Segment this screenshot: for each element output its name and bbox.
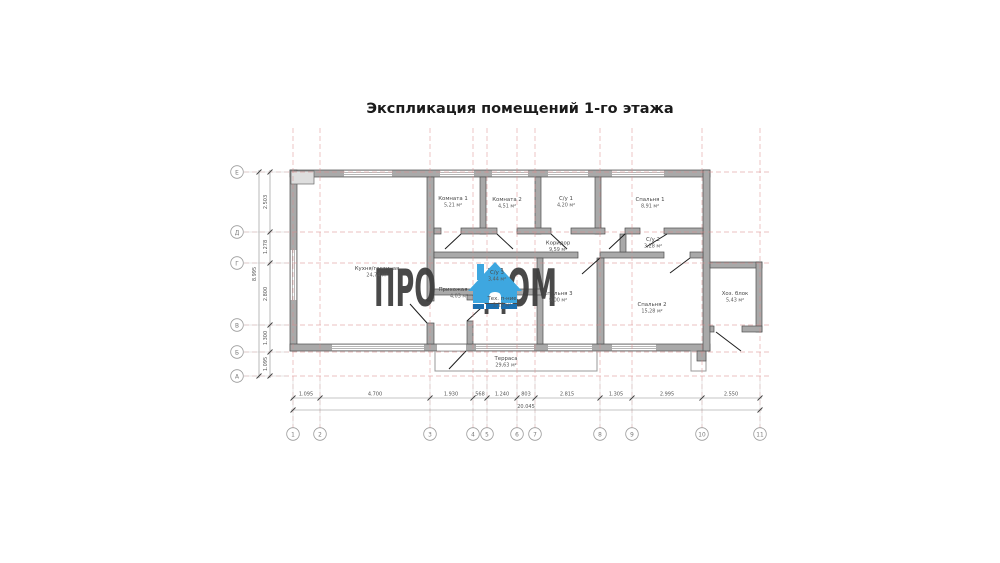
axis-label: В (235, 323, 239, 329)
room-label-bedroom1: Спальня 1 (635, 197, 664, 203)
page-title: Экспликация помещений 1-го этажа (366, 101, 673, 117)
axis-label: 6 (515, 432, 519, 438)
windows (291, 171, 664, 351)
column-axis-markers: 1 2 3 4 5 6 7 8 9 10 11 (287, 428, 767, 441)
window (291, 250, 297, 300)
room-label-room2: Комната 2 (492, 197, 522, 203)
dimension-label: 803 (521, 392, 531, 398)
floor-plan-drawing: Экспликация помещений 1-го этажа (0, 0, 1000, 563)
axis-label: Е (235, 170, 239, 176)
room-area: 29,63 м² (495, 363, 516, 369)
room-area: 3,44 м² (488, 277, 506, 283)
dimension-label: 568 (475, 392, 485, 398)
wall-stub (697, 351, 706, 361)
dimension-label: 1.300 (263, 331, 269, 345)
dimension-label: 4.700 (368, 392, 382, 398)
dimension-label: 1.278 (263, 240, 269, 254)
dimension-label: 2.995 (660, 392, 674, 398)
axis-label: 4 (471, 432, 475, 438)
axis-label: 2 (318, 432, 322, 438)
room-area: 9,59 м² (549, 247, 567, 253)
room-area: 3,28 м² (644, 244, 662, 250)
dimension-label: 2.503 (263, 195, 269, 209)
left-dimensions: 2.503 1.278 2.800 1.300 1.095 8.995 (244, 170, 288, 379)
door-opening (437, 345, 466, 351)
room-area: 4,51 м² (498, 204, 516, 210)
room-label-bathroom1: С/у 1 (559, 196, 573, 202)
room-area: 5,43 м² (726, 298, 744, 304)
room-label-hallway: Прихожая (439, 287, 468, 293)
room-area: 8,91 м² (641, 204, 659, 210)
dimension-label: 2.815 (560, 392, 574, 398)
room-label-kitchen-living: Кухня/гостиная (355, 266, 400, 272)
axis-label: 7 (533, 432, 537, 438)
dimension-label: 1.305 (609, 392, 623, 398)
window (332, 345, 424, 351)
bottom-dimensions: 1.095 4.700 1.930 568 1.240 803 2.815 1.… (291, 380, 763, 426)
axis-label: 3 (428, 432, 432, 438)
room-area: 24,74 м² (366, 273, 387, 279)
dimension-label: 1.240 (495, 392, 509, 398)
room-area: 5,21 м² (444, 203, 462, 209)
corner-pier (291, 171, 314, 184)
room-label-bedroom2: Спальня 2 (637, 302, 666, 308)
window (492, 171, 528, 177)
dimension-total-label: 8.995 (252, 267, 258, 281)
axis-label: 10 (698, 432, 706, 438)
room-label-terrace: Терраса (493, 356, 517, 362)
dimension-total-label: 20.045 (517, 404, 535, 410)
room-label-bedroom3: Спальня 3 (543, 291, 572, 297)
room-area: 2,18 м² (493, 303, 511, 309)
room-area: 9,00 м² (549, 298, 567, 304)
axis-label: Б (235, 350, 239, 356)
row-axis-markers: Е Д Г В Б А (231, 166, 244, 383)
window (612, 171, 664, 177)
window (548, 345, 592, 351)
terrace (435, 351, 706, 371)
axis-label: 9 (630, 432, 634, 438)
window (548, 171, 588, 177)
room-label-corridor: Коридор (546, 241, 571, 247)
axis-label: А (235, 374, 239, 380)
axis-label: Д (235, 230, 240, 236)
window (476, 345, 534, 351)
dimension-label: 1.930 (444, 392, 458, 398)
room-area: 4,20 м² (557, 203, 575, 209)
room-label-bathroom2: С/у 2 (646, 237, 660, 243)
room-area: 15,28 м² (641, 309, 662, 315)
window (344, 171, 392, 177)
axis-label: 11 (756, 432, 764, 438)
dimension-label: 2.550 (724, 392, 738, 398)
axis-label: 8 (598, 432, 602, 438)
room-label-room1: Комната 1 (438, 196, 468, 202)
window (440, 171, 474, 177)
axis-label: 5 (485, 432, 489, 438)
room-label-bathroom3: С/у 3 (490, 270, 504, 276)
room-area: 4,03 м² (450, 294, 468, 300)
dimension-label: 1.095 (299, 392, 313, 398)
dimension-label: 2.800 (263, 287, 269, 301)
axis-label: 1 (291, 432, 295, 438)
dimension-label: 1.095 (263, 357, 269, 371)
room-label-utility-block: Хоз. блок (722, 291, 749, 297)
room-label-tech-room: Тех. п-ние (486, 296, 517, 302)
axis-label: Г (235, 261, 239, 267)
window (612, 345, 656, 351)
